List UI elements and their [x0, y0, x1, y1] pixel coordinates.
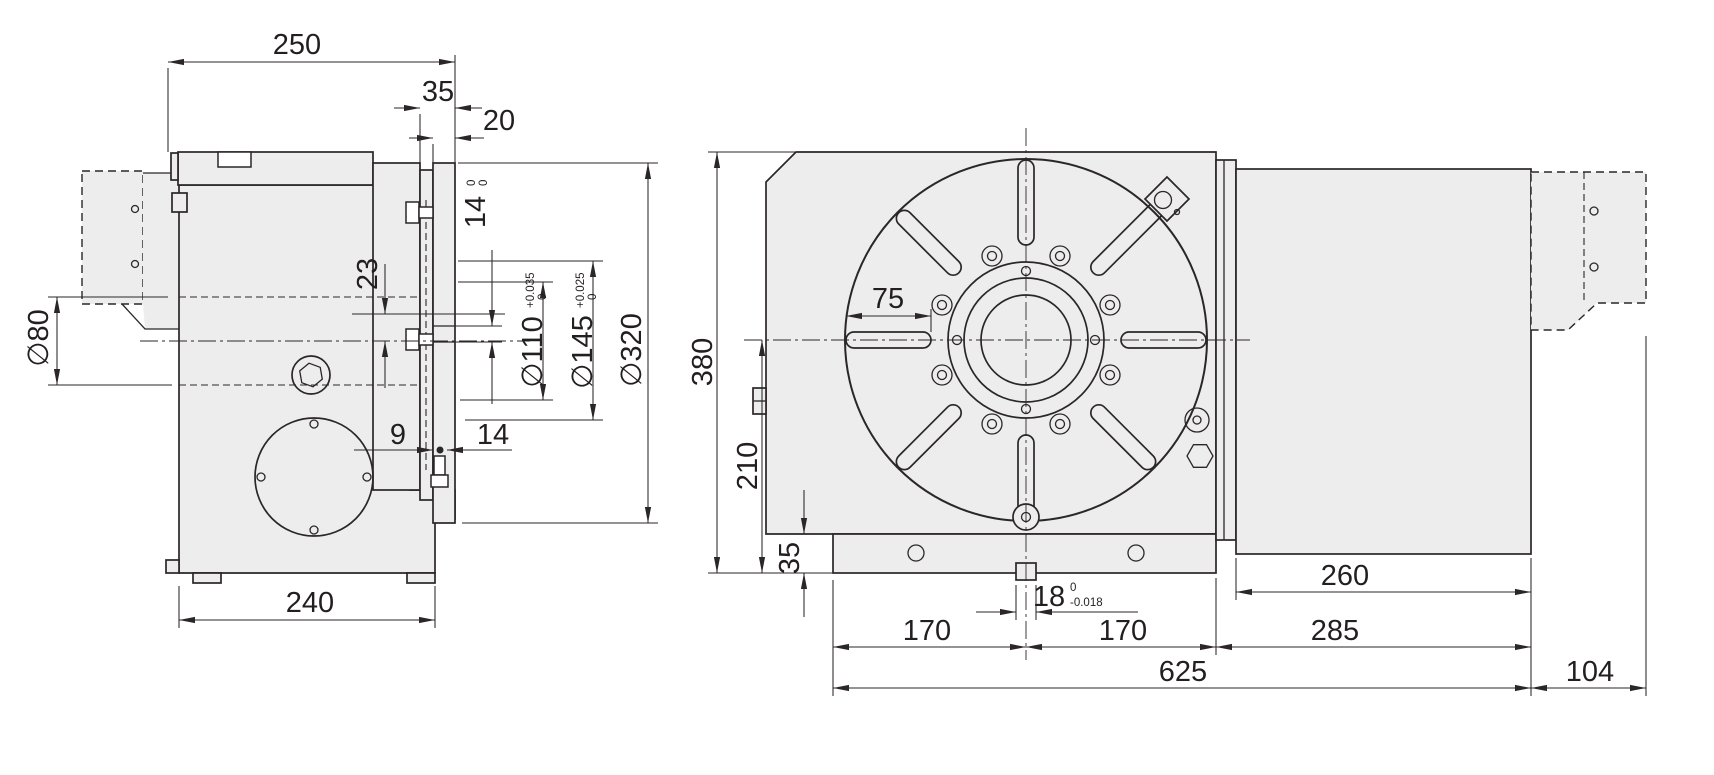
dim-14-tol-upper: 0: [466, 180, 478, 186]
dim-260-label: 260: [1321, 560, 1369, 592]
bolt-head: [406, 329, 419, 350]
dim-145-label: ∅145: [567, 315, 599, 389]
bolt-head: [406, 202, 419, 223]
dim-20-label: 20: [483, 105, 515, 137]
dim-170R-label: 170: [1099, 615, 1147, 647]
base-step: [166, 560, 179, 573]
dim-14b-label: 14: [477, 419, 509, 451]
dim-14-slot-label: 14: [460, 196, 492, 228]
dim-18-tol-lower: -0.018: [1070, 597, 1103, 609]
dim-110-tol-upper: +0.035: [525, 273, 537, 309]
dim-9-label: 9: [390, 419, 406, 451]
dim-320-label: ∅320: [616, 313, 648, 387]
foot: [407, 573, 435, 583]
dim-14-tol-lower: 0: [478, 180, 490, 186]
technical-drawing-page: 250 35 20 14 0 0 23 ∅80: [0, 0, 1714, 775]
dim-240-label: 240: [286, 587, 334, 619]
top-cover-tab: [171, 153, 178, 180]
motor-housing: [1236, 169, 1531, 554]
dim-285-label: 285: [1311, 615, 1359, 647]
dim-18-tol-upper: 0: [1070, 582, 1076, 594]
dim-170L-label: 170: [903, 615, 951, 647]
dim-18-label: 18: [1033, 581, 1065, 613]
dim-250-label: 250: [273, 29, 321, 61]
dim-145-tol-upper: +0.025: [575, 273, 587, 309]
bolt-shank: [419, 207, 433, 218]
dim-110-tol-lower: 0: [537, 294, 549, 300]
dim-110-label: ∅110: [517, 316, 549, 388]
dim-104-label: 104: [1566, 656, 1614, 688]
cover-notch: [218, 152, 251, 167]
side-tab: [172, 193, 187, 212]
dim-80-label: ∅80: [23, 309, 55, 367]
phantom-motor-block: [82, 171, 143, 304]
dim-625-label: 625: [1159, 656, 1207, 688]
bolt-shank: [434, 456, 445, 475]
flange-column: [1216, 160, 1236, 540]
foot: [193, 573, 221, 583]
top-cover: [178, 152, 373, 185]
dim-145-tol-lower: 0: [587, 294, 599, 300]
bolt-head: [431, 475, 448, 487]
dim-380-label: 380: [687, 338, 719, 386]
dim-210-label: 210: [732, 442, 764, 490]
dim-23-label: 23: [352, 258, 384, 290]
dim-75-label: 75: [872, 283, 904, 315]
dim-35-label: 35: [422, 76, 454, 108]
dim-35r-label: 35: [774, 542, 806, 574]
rotary-table-dimension-drawing: 250 35 20 14 0 0 23 ∅80: [0, 0, 1714, 775]
bolt-shank: [419, 334, 433, 345]
